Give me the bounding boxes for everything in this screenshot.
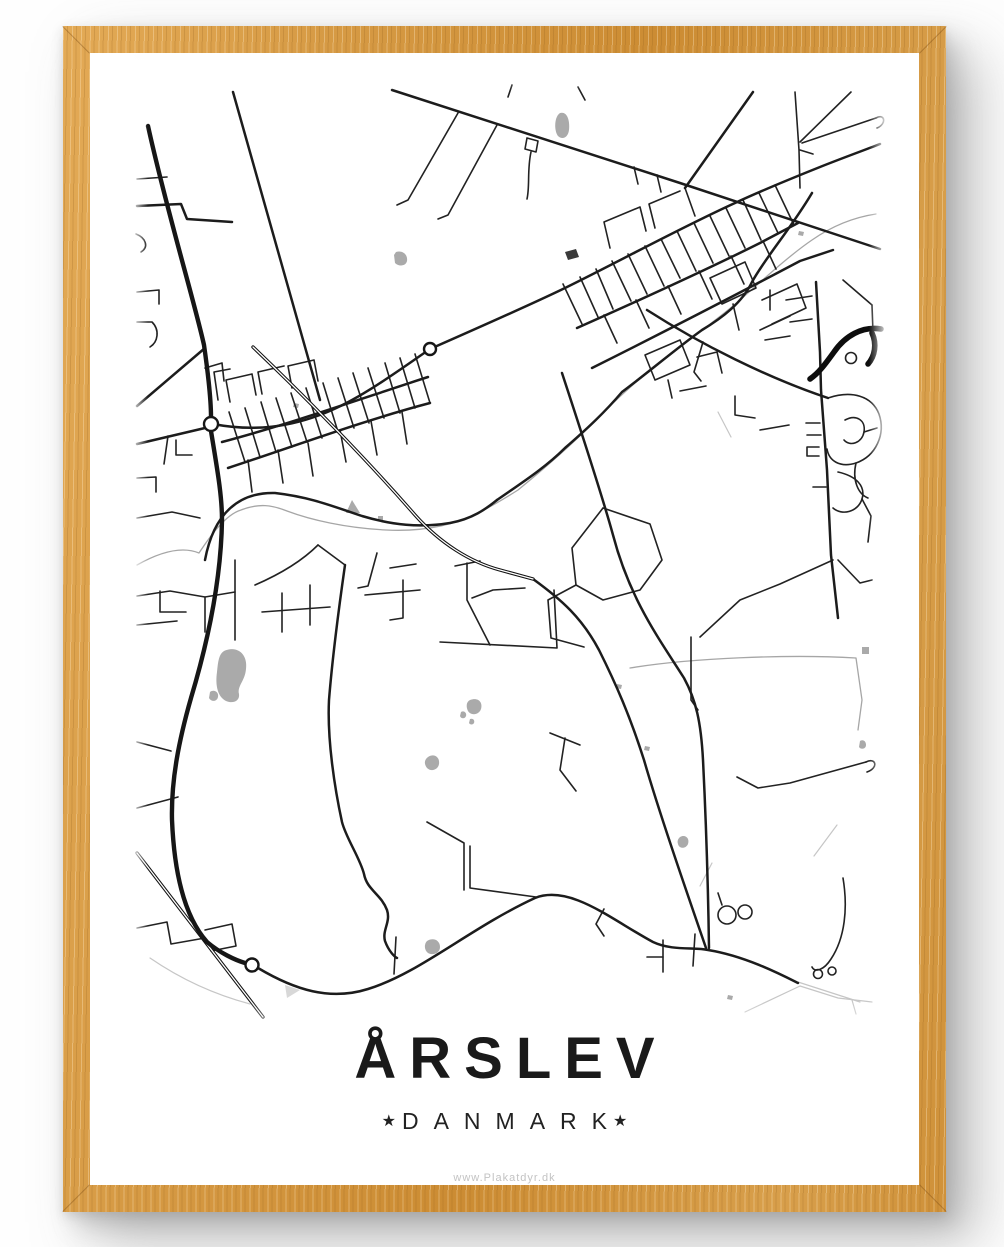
frame-corner-seam	[919, 1184, 947, 1212]
watermark-text: www.Plakatdyr.dk	[90, 1172, 919, 1184]
poster-caption: ÅRSLEV ★ DANMARK ★ www.Plakatdyr.dk	[90, 1025, 919, 1184]
roundabout-icon	[204, 417, 218, 431]
roundabout-icon	[246, 959, 259, 972]
poster: ÅRSLEV ★ DANMARK ★ www.Plakatdyr.dk	[90, 53, 919, 1185]
layer-buildings	[565, 249, 579, 260]
frame-corner-seam	[919, 26, 947, 54]
star-icon: ★	[382, 1111, 396, 1131]
poster-subtitle: ★ DANMARK ★	[90, 1108, 919, 1135]
layer-major-roads	[148, 126, 245, 963]
road-loop	[814, 970, 823, 979]
layer-main-roads	[137, 90, 880, 994]
road-loop	[718, 906, 736, 924]
poster-subtitle-text: DANMARK	[402, 1108, 622, 1135]
frame-corner-seam	[62, 26, 90, 54]
product-photo: ÅRSLEV ★ DANMARK ★ www.Plakatdyr.dk	[0, 0, 1004, 1247]
layer-ponds	[209, 113, 869, 1000]
star-icon: ★	[613, 1111, 627, 1131]
layer-loops	[718, 353, 857, 979]
map-svg	[90, 53, 919, 1185]
road-loop	[738, 905, 752, 919]
road-loop	[828, 967, 836, 975]
layer-streams	[137, 214, 876, 730]
layer-minor-roads	[136, 85, 884, 974]
poster-frame: ÅRSLEV ★ DANMARK ★ www.Plakatdyr.dk	[63, 26, 946, 1212]
poster-title: ÅRSLEV	[90, 1025, 932, 1092]
road-loop	[846, 353, 857, 364]
frame-corner-seam	[62, 1184, 90, 1212]
layer-streams-light	[150, 412, 872, 1014]
roundabout-icon	[424, 343, 436, 355]
